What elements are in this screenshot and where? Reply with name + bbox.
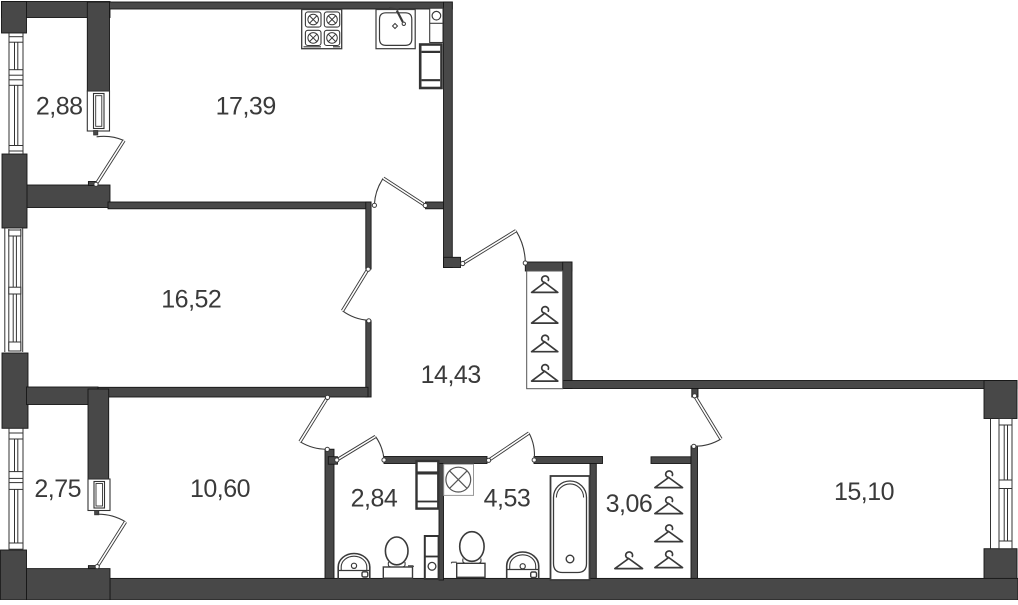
svg-text:2,75: 2,75 <box>34 475 81 503</box>
svg-text:16,52: 16,52 <box>161 286 221 314</box>
svg-text:15,10: 15,10 <box>834 478 894 506</box>
svg-text:14,43: 14,43 <box>421 361 481 389</box>
svg-text:17,39: 17,39 <box>216 93 276 121</box>
svg-text:2,84: 2,84 <box>351 485 398 513</box>
svg-text:3,06: 3,06 <box>606 490 653 518</box>
svg-text:4,53: 4,53 <box>484 485 531 513</box>
svg-text:2,88: 2,88 <box>36 93 83 121</box>
svg-text:10,60: 10,60 <box>190 475 250 503</box>
